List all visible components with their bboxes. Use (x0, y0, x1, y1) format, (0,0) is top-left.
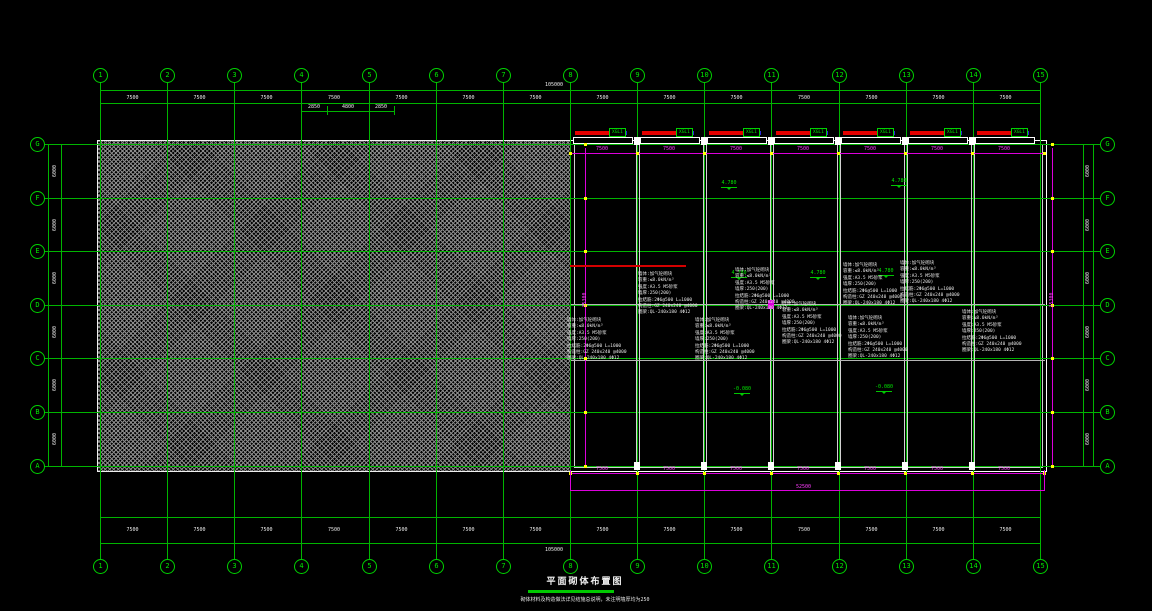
axis-bubble-left-G: G (30, 137, 45, 152)
elevation-mark: -0.080 (727, 386, 757, 394)
sub-dim-tick (327, 106, 328, 115)
chain-tick-dot (837, 472, 840, 475)
chain-tick-dot (971, 152, 974, 155)
top-bay-dim: 7500 (597, 95, 609, 101)
chain-tick-dot (770, 152, 773, 155)
elevation-flag-icon (876, 391, 892, 392)
axis-bubble-top-5: 5 (362, 68, 377, 83)
grid-line-vertical-3 (234, 82, 235, 559)
masonry-spec-block: 墙体:加气砼砌块容重:≤8.0kN/m³强度:A3.5 M5砂浆墙厚:250(2… (695, 318, 755, 363)
vert-total-right: 35300 (1049, 287, 1055, 313)
sub-dim-value: 2850 (375, 104, 387, 110)
elevation-mark: 4.780 (803, 270, 833, 278)
axis-bubble-right-G: G (1100, 137, 1115, 152)
axis-bubble-left-F: F (30, 191, 45, 206)
axis-bubble-top-15: 15 (1033, 68, 1048, 83)
axis-bubble-right-F: F (1100, 191, 1115, 206)
bay-division-line (703, 141, 704, 469)
interior-axis-line-c (571, 360, 1045, 361)
grid-line-vertical-2 (167, 82, 168, 559)
grid-line-vertical-6 (436, 82, 437, 559)
bottom-total-line (570, 490, 1044, 491)
grid-line-vertical-5 (369, 82, 370, 559)
bay-division-line (636, 141, 637, 469)
right-total-dim: 52500 (793, 484, 814, 490)
axis-bubble-top-8: 8 (563, 68, 578, 83)
bottom-ext-left (570, 470, 571, 491)
bay-division-line (974, 141, 975, 469)
sub-dim-value: 4800 (342, 104, 354, 110)
bottom-bay-dim: 7500 (664, 527, 676, 533)
spec-line: 圈梁:QL-240x180 4Φ12 (962, 348, 1022, 354)
axis-bubble-bottom-15: 15 (1033, 559, 1048, 574)
top-bay-dim: 7500 (530, 95, 542, 101)
lintel-red-bar (843, 131, 879, 135)
elevation-flag-icon (891, 185, 907, 186)
sub-dim-tick (301, 106, 302, 115)
left-bay-dim: 6000 (52, 156, 58, 186)
masonry-spec-block: 墙体:加气砼砌块容重:≤8.0kN/m³强度:A3.5 M5砂浆墙厚:250(2… (567, 318, 627, 363)
right-bay-dim-bottom: 7500 (998, 466, 1010, 472)
drawing-note: 砌体材料及构造做法详见结施总说明，未注明墙厚均为250 (455, 596, 715, 603)
top-dim-line-2 (100, 103, 1040, 104)
left-bay-dim: 6000 (52, 263, 58, 293)
hatched-building-block (97, 140, 572, 472)
axis-bubble-right-B: B (1100, 405, 1115, 420)
chain-tick-dot (1051, 143, 1054, 146)
axis-bubble-bottom-13: 13 (899, 559, 914, 574)
column-bottom (634, 462, 640, 470)
lintel-white-rect (975, 137, 1035, 144)
masonry-spec-block: 墙体:加气砼砌块容重:≤8.0kN/m³强度:A3.5 M5砂浆墙厚:250(2… (848, 316, 908, 361)
chain-tick-dot (1051, 411, 1054, 414)
chain-tick-dot (636, 152, 639, 155)
top-bay-dim: 7500 (866, 95, 878, 101)
chain-tick-dot (1043, 152, 1046, 155)
elevation-mark: -0.080 (869, 384, 899, 392)
axis-bubble-right-A: A (1100, 459, 1115, 474)
lintel-red-bar (709, 131, 745, 135)
bottom-bay-dim: 7500 (328, 527, 340, 533)
chain-tick-dot (703, 472, 706, 475)
chain-tick-dot (1051, 465, 1054, 468)
inner-bay-dim: 7500 (730, 146, 742, 152)
masonry-spec-block: 墙体:加气砼砌块容重:≤8.0kN/m³强度:A3.5 M5砂浆墙厚:250(2… (962, 310, 1022, 355)
column-bottom (969, 462, 975, 470)
masonry-spec-block: 墙体:加气砼砌块容重:≤8.0kN/m³强度:A3.5 M5砂浆墙厚:250(2… (843, 263, 903, 308)
inner-bay-dim: 7500 (864, 146, 876, 152)
spec-line: 圈梁:QL-240x180 4Φ12 (695, 356, 755, 362)
bottom-bay-dim: 7500 (933, 527, 945, 533)
axis-bubble-bottom-2: 2 (160, 559, 175, 574)
spec-line: 圈梁:QL-240x180 4Φ12 (567, 356, 627, 362)
axis-bubble-top-2: 2 (160, 68, 175, 83)
bottom-bay-dim: 7500 (731, 527, 743, 533)
axis-bubble-bottom-6: 6 (429, 559, 444, 574)
column-bottom (835, 462, 841, 470)
bottom-bay-dim: 7500 (194, 527, 206, 533)
lintel-white-rect (908, 137, 968, 144)
top-bay-dim: 7500 (798, 95, 810, 101)
bottom-bay-dim: 7500 (530, 527, 542, 533)
grid-line-horizontal-E (44, 251, 1100, 252)
chain-tick-dot (971, 472, 974, 475)
lintel-white-rect (640, 137, 700, 144)
axis-bubble-left-B: B (30, 405, 45, 420)
sub-dim-tick (369, 106, 370, 115)
axis-bubble-top-10: 10 (697, 68, 712, 83)
xgl-tag: XGL1 (676, 128, 693, 137)
axis-bubble-bottom-7: 7 (496, 559, 511, 574)
right-bay-dim: 6000 (1085, 370, 1091, 400)
axis-bubble-bottom-9: 9 (630, 559, 645, 574)
inner-bay-dim: 7500 (998, 146, 1010, 152)
bottom-bay-dim: 7500 (1000, 527, 1012, 533)
axis-bubble-bottom-8: 8 (563, 559, 578, 574)
right-bay-dim-bottom: 7500 (864, 466, 876, 472)
top-bay-dim: 7500 (463, 95, 475, 101)
right-bay-dim-bottom: 7500 (596, 466, 608, 472)
right-chain-line-1 (1083, 144, 1084, 466)
vert-total-left: 35300 (582, 287, 588, 313)
axis-bubble-right-D: D (1100, 298, 1115, 313)
top-bay-dim: 7500 (328, 95, 340, 101)
chain-tick-dot (636, 472, 639, 475)
axis-bubble-left-A: A (30, 459, 45, 474)
axis-bubble-top-9: 9 (630, 68, 645, 83)
elevation-flag-icon (734, 393, 750, 394)
left-bay-dim: 6000 (52, 424, 58, 454)
lintel-red-bar (910, 131, 946, 135)
chain-tick-dot (904, 472, 907, 475)
left-bay-dim: 6000 (52, 317, 58, 347)
masonry-spec-block: 墙体:加气砼砌块容重:≤8.0kN/m³强度:A3.5 M5砂浆墙厚:250(2… (900, 261, 960, 306)
left-bay-dim: 6000 (52, 210, 58, 240)
axis-bubble-right-C: C (1100, 351, 1115, 366)
spec-line: 圈梁:QL-240x180 4Φ12 (848, 354, 908, 360)
inner-bay-dim: 7500 (797, 146, 809, 152)
grid-line-horizontal-F (44, 198, 1100, 199)
top-bay-dim: 7500 (664, 95, 676, 101)
inner-bay-dim: 7500 (931, 146, 943, 152)
top-bay-dim: 7500 (731, 95, 743, 101)
xgl-tag: XGL1 (1011, 128, 1028, 137)
axis-bubble-bottom-14: 14 (966, 559, 981, 574)
bottom-bay-dim: 7500 (127, 527, 139, 533)
lintel-white-rect (573, 137, 633, 144)
xgl-tag: XGL1 (944, 128, 961, 137)
bottom-ext-right (1044, 470, 1045, 491)
inner-bay-dim: 7500 (596, 146, 608, 152)
xgl-tag: XGL1 (609, 128, 626, 137)
chain-tick-dot (770, 472, 773, 475)
sub-dim-value: 2850 (308, 104, 320, 110)
elevation-value: -0.080 (733, 386, 751, 392)
left-chain-line-2 (61, 144, 62, 466)
elevation-value: -0.080 (875, 384, 893, 390)
axis-bubble-bottom-3: 3 (227, 559, 242, 574)
grid-line-horizontal-B (44, 412, 1100, 413)
top-bay-dim: 7500 (127, 95, 139, 101)
masonry-spec-block: 墙体:加气砼砌块容重:≤8.0kN/m³强度:A3.5 M5砂浆墙厚:250(2… (782, 302, 842, 347)
top-bay-dim: 7500 (396, 95, 408, 101)
top-bay-dim: 7500 (1000, 95, 1012, 101)
left-bay-dim: 6000 (52, 370, 58, 400)
elevation-value: 4.780 (721, 180, 736, 186)
top-bay-dim: 7500 (194, 95, 206, 101)
bottom-bay-dim: 7500 (866, 527, 878, 533)
axis-bubble-top-1: 1 (93, 68, 108, 83)
chain-tick-dot (1051, 357, 1054, 360)
title-underline (528, 590, 614, 593)
bay-division-line (971, 141, 972, 469)
chain-tick-dot (584, 197, 587, 200)
chain-tick-dot (703, 152, 706, 155)
lintel-red-bar (776, 131, 812, 135)
bottom-bay-dim: 7500 (463, 527, 475, 533)
top-bay-dim: 7500 (261, 95, 273, 101)
lintel-red-bar (977, 131, 1013, 135)
right-bay-dim-bottom: 7500 (730, 466, 742, 472)
right-bay-dim-bottom: 7500 (931, 466, 943, 472)
grid-line-vertical-4 (301, 82, 302, 559)
bottom-dim-line-2 (100, 543, 1040, 544)
lintel-white-rect (841, 137, 901, 144)
axis-bubble-bottom-4: 4 (294, 559, 309, 574)
lintel-red-bar (642, 131, 678, 135)
axis-bubble-right-E: E (1100, 244, 1115, 259)
right-bay-dim: 6000 (1085, 263, 1091, 293)
spec-line: 圈梁:QL-240x180 4Φ12 (843, 301, 903, 307)
top-bay-dim: 7500 (933, 95, 945, 101)
elevation-flag-icon (810, 277, 826, 278)
axis-bubble-bottom-5: 5 (362, 559, 377, 574)
chain-tick-dot (837, 152, 840, 155)
elevation-value: 4.780 (891, 178, 906, 184)
right-chain-line-2 (1093, 144, 1094, 466)
chain-tick-dot (569, 152, 572, 155)
right-bay-dim-bottom: 7500 (663, 466, 675, 472)
axis-bubble-bottom-11: 11 (764, 559, 779, 574)
sub-dim-tick (394, 106, 395, 115)
right-bay-dim: 6000 (1085, 210, 1091, 240)
bottom-total-dim: 105000 (545, 547, 563, 553)
axis-bubble-bottom-12: 12 (832, 559, 847, 574)
axis-bubble-bottom-1: 1 (93, 559, 108, 574)
right-bay-dim: 6000 (1085, 156, 1091, 186)
xgl-tag: XGL1 (743, 128, 760, 137)
grid-line-horizontal-G (44, 144, 1100, 145)
lintel-red-bar (575, 131, 611, 135)
sub-dim-line (301, 111, 394, 112)
column-bottom (902, 462, 908, 470)
chain-tick-dot (1051, 197, 1054, 200)
inner-bay-dim: 7500 (663, 146, 675, 152)
axis-bubble-left-E: E (30, 244, 45, 259)
axis-bubble-top-3: 3 (227, 68, 242, 83)
chain-tick-dot (584, 465, 587, 468)
axis-bubble-top-13: 13 (899, 68, 914, 83)
grid-line-vertical-7 (503, 82, 504, 559)
xgl-tag: XGL1 (877, 128, 894, 137)
axis-bubble-top-7: 7 (496, 68, 511, 83)
chain-tick-dot (1051, 250, 1054, 253)
left-chain-line-1 (48, 144, 49, 466)
bay-division-line (706, 141, 707, 469)
bottom-dim-line-1 (100, 517, 1040, 518)
column-bottom (701, 462, 707, 470)
axis-bubble-bottom-10: 10 (697, 559, 712, 574)
axis-bubble-left-D: D (30, 298, 45, 313)
bottom-bay-dim: 7500 (798, 527, 810, 533)
axis-bubble-left-C: C (30, 351, 45, 366)
lintel-white-rect (707, 137, 767, 144)
elevation-mark: 4.780 (884, 178, 914, 186)
elevation-flag-icon (721, 187, 737, 188)
right-bay-dim: 6000 (1085, 424, 1091, 454)
right-bay-dim: 6000 (1085, 317, 1091, 347)
elevation-value: 4.780 (810, 270, 825, 276)
column-bottom (768, 462, 774, 470)
chain-tick-dot (584, 411, 587, 414)
top-total-dim: 105000 (545, 82, 563, 88)
bottom-bay-dim: 7500 (597, 527, 609, 533)
axis-bubble-top-12: 12 (832, 68, 847, 83)
axis-bubble-top-6: 6 (429, 68, 444, 83)
beam-annotation-line (570, 265, 686, 267)
bottom-bay-dim: 7500 (396, 527, 408, 533)
cad-drawing-canvas: 1122334455667788991010111112121313141415… (0, 0, 1152, 611)
spec-line: 圈梁:QL-240x180 4Φ12 (782, 340, 842, 346)
spec-line: 圈梁:QL-240x180 4Φ12 (638, 310, 698, 316)
axis-bubble-top-14: 14 (966, 68, 981, 83)
masonry-spec-block: 墙体:加气砼砌块容重:≤8.0kN/m³强度:A3.5 M5砂浆墙厚:250(2… (638, 272, 698, 317)
axis-bubble-top-4: 4 (294, 68, 309, 83)
grid-line-vertical-1 (100, 82, 101, 559)
chain-tick-dot (584, 143, 587, 146)
spec-line: 圈梁:QL-240x180 4Φ12 (900, 299, 960, 305)
right-bay-dim-bottom: 7500 (797, 466, 809, 472)
chain-tick-dot (904, 152, 907, 155)
bottom-bay-dim: 7500 (261, 527, 273, 533)
drawing-title: 平面砌体布置图 (480, 574, 690, 587)
top-dim-line-1 (100, 90, 1040, 91)
elevation-mark: 4.780 (714, 180, 744, 188)
chain-tick-dot (584, 250, 587, 253)
lintel-white-rect (774, 137, 834, 144)
xgl-tag: XGL1 (810, 128, 827, 137)
axis-bubble-top-11: 11 (764, 68, 779, 83)
